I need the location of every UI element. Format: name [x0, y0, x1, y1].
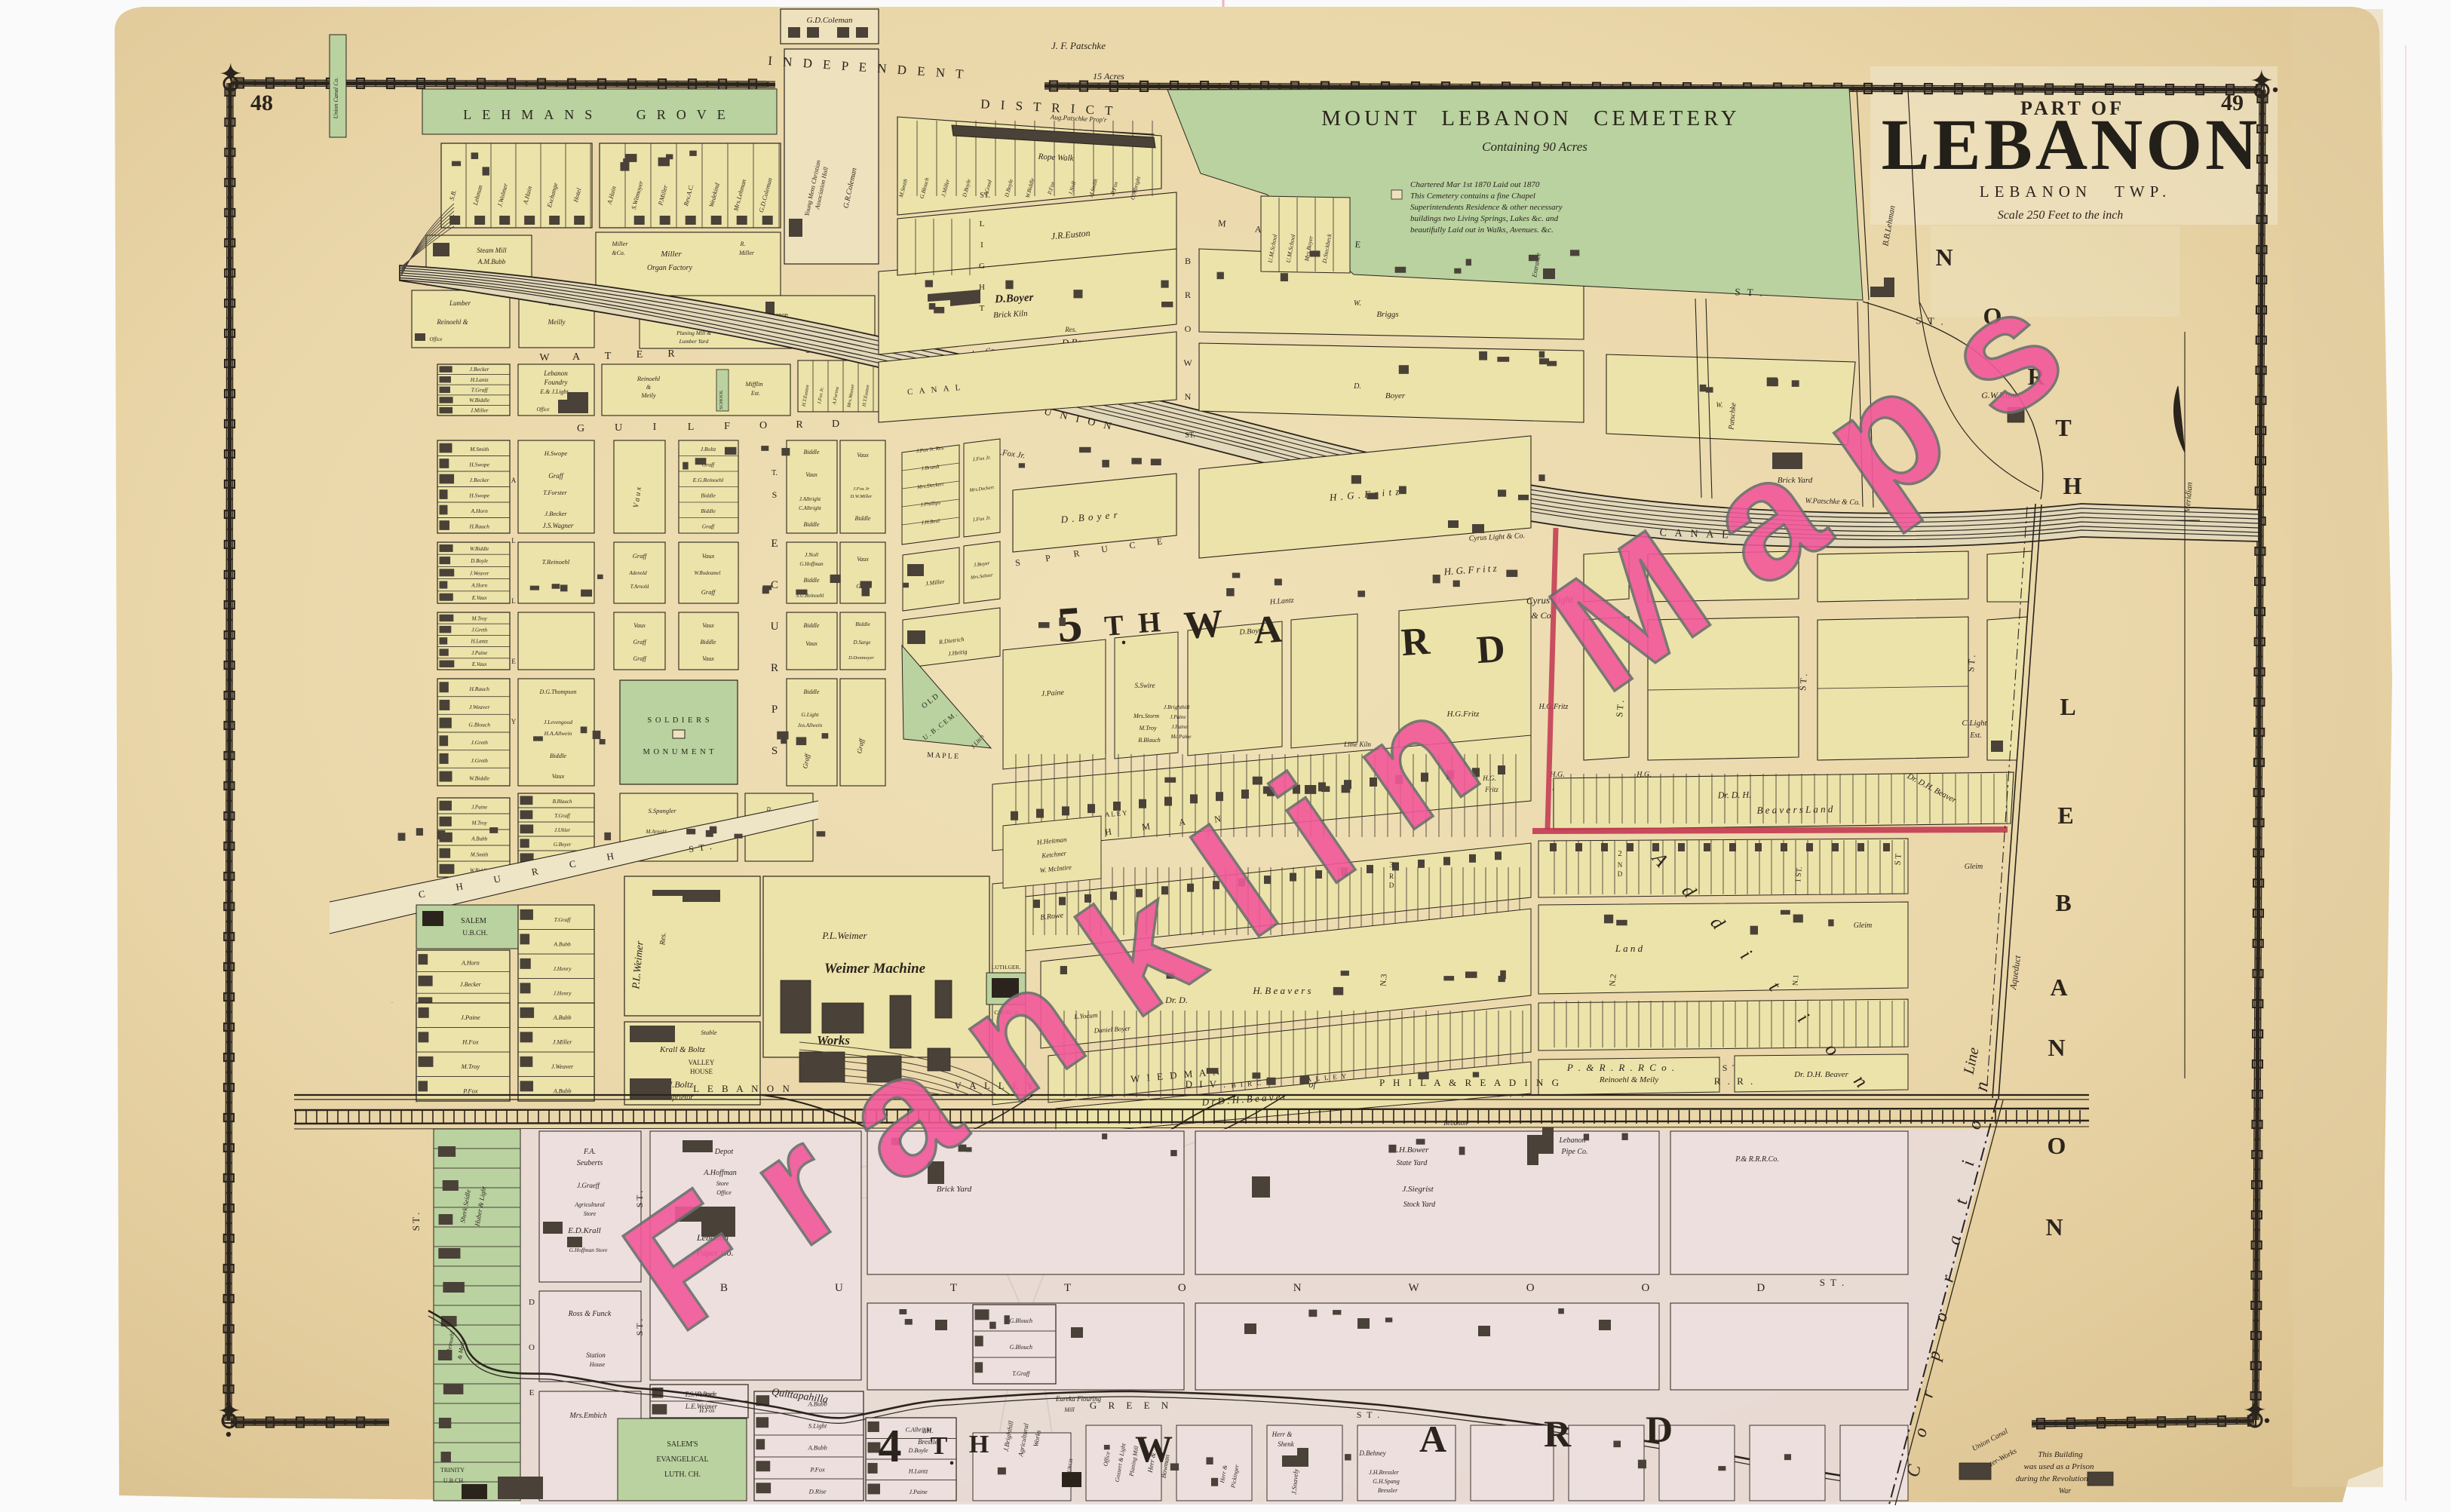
- svg-text:Vaux: Vaux: [702, 622, 714, 629]
- svg-text:Biddle: Biddle: [804, 577, 820, 584]
- svg-text:Lumber: Lumber: [449, 299, 471, 307]
- svg-text:M A P L E: M A P L E: [927, 751, 959, 761]
- svg-text:O: O: [1185, 324, 1192, 334]
- svg-text:SCHOOL: SCHOOL: [719, 390, 724, 409]
- svg-text:Vaux: Vaux: [857, 556, 869, 563]
- svg-text:D I V .: D I V .: [1186, 1078, 1229, 1090]
- svg-text:J.Brighthill: J.Brighthill: [1164, 704, 1189, 710]
- svg-text:LEBANON TWP.: LEBANON TWP.: [1980, 182, 2171, 201]
- svg-text:A: A: [572, 351, 581, 363]
- svg-text:E: E: [511, 658, 516, 665]
- svg-text:L: L: [2060, 693, 2075, 720]
- svg-text:War: War: [2059, 1487, 2071, 1495]
- svg-text:A.Horn: A.Horn: [461, 959, 480, 966]
- svg-text:O: O: [759, 420, 767, 431]
- svg-text:B.Blauch: B.Blauch: [391, 1002, 394, 1004]
- svg-text:Biddle: Biddle: [855, 621, 870, 627]
- svg-text:E: E: [2057, 802, 2073, 829]
- svg-text:W.: W.: [1354, 299, 1361, 308]
- svg-text:I: I: [653, 422, 657, 433]
- svg-text:Gleim: Gleim: [1854, 922, 1872, 930]
- svg-text:J.Weaver: J.Weaver: [470, 570, 489, 576]
- svg-text:Dr. D.H. Beaver: Dr. D.H. Beaver: [1793, 1070, 1849, 1079]
- svg-text:H.Rauch: H.Rauch: [468, 523, 489, 529]
- svg-text:B: B: [1185, 256, 1191, 266]
- svg-text:B e a v e r s L a n d: B e a v e r s L a n d: [1756, 803, 1833, 816]
- svg-text:J.Graeff: J.Graeff: [577, 1182, 600, 1189]
- svg-text:4: 4: [879, 1421, 902, 1472]
- svg-text:D.: D.: [1353, 382, 1361, 391]
- svg-text:EVANGELICAL: EVANGELICAL: [656, 1455, 708, 1464]
- svg-text:HOUSE: HOUSE: [690, 1068, 713, 1075]
- svg-text:T.Graff: T.Graff: [554, 916, 572, 923]
- svg-text:N: N: [2048, 1034, 2065, 1061]
- svg-text:H: H: [2063, 472, 2082, 499]
- svg-text:U: U: [615, 422, 622, 434]
- svg-text:J.H.Bressler: J.H.Bressler: [1369, 1469, 1400, 1476]
- svg-text:D.Rise: D.Rise: [808, 1488, 827, 1495]
- svg-text:G.Boyer: G.Boyer: [554, 842, 572, 848]
- svg-text:H.Swope: H.Swope: [468, 461, 490, 468]
- svg-text:Adenold: Adenold: [628, 570, 647, 576]
- svg-text:E: E: [637, 349, 643, 360]
- svg-text:S T .: S T .: [1965, 655, 1977, 673]
- svg-text:Vaux: Vaux: [805, 471, 818, 478]
- svg-text:Gleim: Gleim: [1965, 863, 1983, 871]
- svg-text:Est.: Est.: [1969, 731, 1981, 740]
- svg-text:.: .: [1121, 626, 1127, 649]
- svg-text:L.E.Weimer: L.E.Weimer: [685, 1403, 718, 1410]
- svg-text:Biddle: Biddle: [804, 521, 820, 528]
- svg-text:H: H: [1137, 606, 1161, 639]
- svg-text:D.W.Miller: D.W.Miller: [849, 494, 872, 499]
- svg-text:H.Rauch: H.Rauch: [468, 685, 489, 692]
- svg-text:M.Smith: M.Smith: [469, 446, 489, 452]
- svg-text:Dr. D. H.: Dr. D. H.: [1717, 790, 1752, 801]
- svg-text:Chartered Mar 1st 1870 Laid ou: Chartered Mar 1st 1870 Laid out 1870: [1410, 180, 1540, 189]
- svg-text:1 ST.: 1 ST.: [1794, 866, 1804, 883]
- svg-text:R: R: [796, 419, 803, 431]
- svg-text:J.Paine: J.Paine: [909, 1489, 928, 1495]
- svg-text:Jos.Allwein: Jos.Allwein: [798, 722, 823, 728]
- svg-text:E.Vaux: E.Vaux: [471, 661, 488, 667]
- svg-text:W: W: [1183, 357, 1192, 368]
- svg-text:L: L: [980, 219, 985, 228]
- svg-text:D.Boyle: D.Boyle: [470, 558, 488, 564]
- svg-text:Vaux: Vaux: [805, 640, 818, 647]
- svg-text:Biddle: Biddle: [855, 515, 871, 522]
- svg-text:F: F: [724, 421, 730, 432]
- svg-text:Biddle: Biddle: [701, 492, 716, 499]
- svg-text:Stable: Stable: [701, 1029, 716, 1036]
- svg-text:T: T: [931, 1432, 948, 1460]
- svg-text:Miller: Miller: [738, 250, 755, 256]
- svg-text:E: E: [1354, 239, 1361, 250]
- svg-text:A.Bubb: A.Bubb: [807, 1444, 827, 1452]
- svg-text:H: H: [969, 1431, 989, 1458]
- svg-text:G.Hoffman: G.Hoffman: [799, 561, 824, 567]
- svg-text:J.Henry: J.Henry: [554, 965, 572, 972]
- svg-text:R.: R.: [740, 241, 746, 247]
- svg-text:Briggs: Briggs: [1376, 310, 1398, 319]
- svg-text:R: R: [667, 348, 675, 360]
- svg-text:D.Sarge: D.Sarge: [853, 639, 871, 646]
- svg-text:Mc.Paine: Mc.Paine: [1170, 734, 1191, 740]
- svg-text:Mrs.Embich: Mrs.Embich: [569, 1412, 606, 1420]
- svg-text:H: H: [979, 283, 985, 292]
- svg-text:S: S: [771, 745, 778, 757]
- svg-text:P.L.Weimer: P.L.Weimer: [821, 930, 867, 941]
- svg-text:J.Henry: J.Henry: [554, 990, 572, 997]
- svg-text:A.Horn: A.Horn: [471, 508, 489, 514]
- svg-text:M: M: [1217, 218, 1226, 229]
- svg-text:B.Blauch: B.Blauch: [1138, 737, 1161, 744]
- svg-text:E.D.Krall: E.D.Krall: [567, 1226, 600, 1235]
- svg-text:M.Troy: M.Troy: [471, 615, 488, 621]
- svg-text:P: P: [771, 704, 778, 716]
- svg-text:O: O: [2048, 1132, 2066, 1159]
- svg-text:Graff: Graff: [701, 588, 716, 596]
- svg-text:J.Weaver: J.Weaver: [469, 704, 489, 710]
- svg-text:M O N U M E N T: M O N U M E N T: [643, 748, 714, 756]
- svg-text:Pipe Co.: Pipe Co.: [1561, 1148, 1588, 1156]
- svg-text:G.Blouch: G.Blouch: [1010, 1317, 1032, 1324]
- svg-text:Graff: Graff: [548, 472, 564, 480]
- svg-text:Lebanon: Lebanon: [543, 370, 568, 377]
- svg-text:D.Boyer: D.Boyer: [994, 292, 1034, 306]
- svg-text:M.Troy: M.Troy: [1138, 725, 1156, 731]
- svg-text:W: W: [1183, 602, 1225, 647]
- svg-text:R: R: [771, 662, 778, 674]
- svg-text:was used as a Prison: was used as a Prison: [2024, 1462, 2094, 1471]
- svg-text:D: D: [1646, 1408, 1673, 1450]
- svg-text:S T .: S T .: [1820, 1277, 1845, 1288]
- svg-text:Mrs.Storm: Mrs.Storm: [1133, 713, 1159, 719]
- svg-text:P H I L A & R E A D I N G: P H I L A & R E A D I N G: [1379, 1077, 1562, 1088]
- svg-text:J.Uhler: J.Uhler: [554, 827, 570, 833]
- svg-text:L: L: [511, 597, 516, 605]
- svg-text:Stock Yard: Stock Yard: [1403, 1201, 1436, 1209]
- svg-text:S T: S T: [1893, 853, 1903, 866]
- svg-text:J.Becker: J.Becker: [544, 510, 567, 517]
- svg-text:H.Lantz: H.Lantz: [470, 639, 488, 645]
- svg-text:Mifflin: Mifflin: [744, 380, 762, 388]
- svg-text:J.Boltz: J.Boltz: [701, 446, 716, 452]
- svg-text:J.Paine: J.Paine: [1041, 689, 1065, 698]
- svg-text:D: D: [529, 1298, 535, 1307]
- svg-text:.: .: [949, 1446, 955, 1470]
- svg-text:O: O: [529, 1343, 535, 1352]
- svg-text:Vaux: Vaux: [633, 622, 646, 629]
- svg-text:W.: W.: [1716, 401, 1723, 409]
- svg-text:G.Blouch: G.Blouch: [1010, 1344, 1032, 1351]
- svg-text:J. F. Patschke: J. F. Patschke: [1051, 40, 1106, 51]
- svg-text:G: G: [979, 262, 985, 271]
- svg-text:H.Fox: H.Fox: [462, 1038, 479, 1046]
- svg-text:H.Lantz: H.Lantz: [470, 376, 489, 383]
- svg-text:J.Paine: J.Paine: [1171, 724, 1187, 730]
- svg-text:&: &: [646, 384, 652, 391]
- svg-text:G.Light: G.Light: [801, 711, 819, 718]
- svg-text:E.Vaux: E.Vaux: [471, 595, 488, 601]
- svg-text:Herr &: Herr &: [1272, 1431, 1293, 1438]
- svg-text:Station: Station: [586, 1351, 606, 1359]
- svg-text:U.B.CH.: U.B.CH.: [443, 1477, 465, 1484]
- svg-text:J.Noll: J.Noll: [805, 551, 818, 558]
- svg-text:G.H.Spang: G.H.Spang: [1373, 1478, 1400, 1485]
- svg-text:Lebanon: Lebanon: [1443, 1119, 1468, 1127]
- svg-text:Meily: Meily: [640, 391, 656, 399]
- svg-text:T.Forster: T.Forster: [543, 489, 567, 496]
- svg-text:Office: Office: [536, 406, 549, 413]
- svg-text:N: N: [1935, 244, 1953, 271]
- svg-text:A.Bubb: A.Bubb: [553, 1088, 572, 1095]
- svg-text:Bressler: Bressler: [1378, 1487, 1398, 1494]
- svg-text:J.Paine: J.Paine: [461, 1014, 480, 1021]
- svg-text:T.Arnold: T.Arnold: [630, 584, 649, 590]
- svg-text:J.Greth: J.Greth: [471, 739, 488, 746]
- svg-text:A.Horn: A.Horn: [471, 583, 487, 589]
- svg-text:E.G.Reinoehl: E.G.Reinoehl: [692, 477, 723, 483]
- svg-text:Meilly: Meilly: [548, 318, 566, 326]
- svg-text:A: A: [2050, 974, 2067, 1001]
- svg-text:Superintendents Residence & ot: Superintendents Residence & other necess…: [1410, 203, 1563, 212]
- svg-text:C.Albright: C.Albright: [799, 505, 822, 511]
- svg-text:J.Weaver: J.Weaver: [415, 1102, 418, 1103]
- svg-text:TRINITY: TRINITY: [440, 1467, 465, 1474]
- svg-text:LEHMANS GROVE: LEHMANS GROVE: [463, 107, 736, 122]
- svg-text:H.Swope: H.Swope: [468, 492, 490, 498]
- svg-text:during the Revolutionary: during the Revolutionary: [2016, 1474, 2100, 1483]
- svg-text:VALLEY: VALLEY: [689, 1059, 715, 1066]
- svg-text:P.& R.R.R.Co.: P.& R.R.R.Co.: [1735, 1155, 1779, 1164]
- svg-text:A: A: [1419, 1418, 1446, 1460]
- svg-text:R . R .: R . R .: [1714, 1075, 1756, 1087]
- svg-text:D.Behney: D.Behney: [1358, 1449, 1385, 1457]
- svg-text:Graff: Graff: [633, 655, 647, 662]
- svg-text:N: N: [2045, 1213, 2063, 1241]
- svg-text:D: D: [1618, 870, 1623, 878]
- svg-text:A.Bubb: A.Bubb: [553, 941, 571, 948]
- svg-text:S T .: S T .: [634, 1319, 645, 1336]
- svg-text:D.Boyle: D.Boyle: [908, 1447, 928, 1454]
- svg-text:M.Troy: M.Troy: [471, 820, 488, 826]
- svg-text:G.Blouch: G.Blouch: [468, 721, 490, 728]
- svg-text:A.Bubb: A.Bubb: [471, 836, 487, 842]
- svg-text:W: W: [539, 352, 550, 363]
- svg-text:T.Graff: T.Graff: [1012, 1370, 1031, 1377]
- svg-text:W.Biddle: W.Biddle: [469, 774, 490, 781]
- svg-text:Organ Factory: Organ Factory: [647, 264, 692, 272]
- svg-text:D.Donmoyer: D.Donmoyer: [848, 655, 874, 661]
- svg-text:Foundry: Foundry: [544, 379, 568, 386]
- svg-text:J.Paine: J.Paine: [471, 650, 487, 656]
- svg-text:Shenk: Shenk: [1278, 1440, 1294, 1448]
- svg-text:S T .: S T .: [1797, 673, 1809, 692]
- svg-text:Office: Office: [429, 336, 442, 342]
- svg-text:Containing 90 Acres: Containing 90 Acres: [1482, 140, 1587, 154]
- svg-text:D: D: [832, 419, 839, 430]
- svg-text:15 Acres: 15 Acres: [1093, 71, 1124, 81]
- svg-text:Lumber Yard: Lumber Yard: [679, 338, 709, 345]
- svg-text:Scale 250 Feet to the inch: Scale 250 Feet to the inch: [1998, 209, 2124, 222]
- svg-text:M.Smith: M.Smith: [470, 851, 489, 857]
- svg-text:L a n d: L a n d: [1615, 943, 1643, 954]
- svg-text:N: N: [1618, 861, 1623, 869]
- svg-text:Vaux: Vaux: [552, 772, 565, 780]
- svg-text:Lebanon: Lebanon: [1559, 1136, 1586, 1145]
- svg-text:Steam Mill: Steam Mill: [477, 247, 507, 254]
- svg-text:J.Siegrist: J.Siegrist: [1402, 1185, 1434, 1194]
- svg-text:Vaux: Vaux: [857, 452, 869, 459]
- svg-text:J.Becker: J.Becker: [460, 981, 482, 988]
- svg-text:Reinoehl: Reinoehl: [637, 375, 661, 382]
- svg-text:ST.: ST.: [980, 192, 989, 200]
- svg-text:House: House: [589, 1361, 606, 1368]
- svg-text:J.Miller: J.Miller: [471, 407, 489, 414]
- svg-text:B.Blauch: B.Blauch: [553, 799, 572, 805]
- svg-text:Res.: Res.: [1064, 326, 1076, 333]
- svg-text:Biddle: Biddle: [804, 689, 820, 695]
- svg-text:C: C: [771, 579, 778, 591]
- svg-text:Rope Walk: Rope Walk: [1037, 152, 1075, 164]
- svg-text:Krall & Boltz: Krall & Boltz: [659, 1045, 706, 1054]
- svg-text:N.2: N.2: [1608, 974, 1618, 986]
- svg-text:A.M.Bubb: A.M.Bubb: [477, 258, 506, 265]
- svg-text:&Co.: &Co.: [612, 250, 625, 256]
- svg-text:P . & R . R . R C o .: P . & R . R . R C o .: [1566, 1062, 1676, 1073]
- svg-text:T.: T.: [771, 469, 778, 477]
- svg-text:Reinoehl &: Reinoehl &: [436, 318, 468, 326]
- svg-text:H.Lantz: H.Lantz: [908, 1468, 928, 1475]
- svg-text:BUTTONWOOD: BUTTONWOOD: [720, 1282, 1872, 1294]
- svg-text:Boyer: Boyer: [1385, 391, 1406, 400]
- svg-text:E: E: [771, 538, 778, 550]
- svg-text:W.Biddle: W.Biddle: [469, 397, 490, 403]
- svg-text:M.Troy: M.Troy: [461, 1063, 480, 1070]
- svg-text:E.& J.Light: E.& J.Light: [539, 388, 569, 395]
- svg-text:SALEM'S: SALEM'S: [667, 1440, 698, 1449]
- svg-text:Biddle: Biddle: [550, 752, 566, 759]
- svg-text:Mill: Mill: [1063, 1406, 1075, 1413]
- svg-text:S.Light: S.Light: [808, 1422, 827, 1430]
- svg-text:L: L: [688, 422, 695, 433]
- svg-text:Ross & Funck: Ross & Funck: [568, 1310, 612, 1318]
- svg-text:A.Bubb: A.Bubb: [553, 1014, 572, 1021]
- svg-text:J.Paine: J.Paine: [1170, 714, 1186, 720]
- svg-text:H.A.Allwein: H.A.Allwein: [544, 730, 572, 737]
- svg-text:J.Fox Jr: J.Fox Jr: [853, 486, 870, 492]
- svg-text:T: T: [980, 304, 985, 313]
- svg-text:Res.: Res.: [658, 932, 668, 946]
- svg-text:P.Fox: P.Fox: [809, 1466, 825, 1474]
- svg-text:U: U: [771, 621, 779, 633]
- svg-text:N.3: N.3: [1379, 974, 1388, 987]
- svg-text:Union Canal Co.: Union Canal Co.: [333, 78, 339, 119]
- svg-text:Est.: Est.: [750, 390, 760, 397]
- svg-text:Biddle: Biddle: [701, 508, 716, 514]
- svg-text:H.Swope: H.Swope: [544, 449, 568, 457]
- svg-text:W: W: [1135, 1428, 1173, 1470]
- svg-text:Miller: Miller: [611, 240, 628, 247]
- svg-text:A: A: [511, 477, 517, 484]
- svg-text:J.Paine: J.Paine: [471, 804, 487, 810]
- svg-text:ST.: ST.: [1185, 431, 1195, 440]
- svg-text:N.1: N.1: [1791, 974, 1800, 986]
- svg-text:This Cemetery contains a fine: This Cemetery contains a fine Chapel: [1410, 192, 1535, 201]
- svg-text:buildings two Living Springs,: buildings two Living Springs, Lakes &c. …: [1410, 214, 1559, 223]
- svg-text:J.Levengood: J.Levengood: [544, 719, 572, 725]
- svg-text:R: R: [1185, 290, 1191, 300]
- svg-text:G.D.Coleman: G.D.Coleman: [806, 16, 853, 25]
- svg-text:48: 48: [250, 90, 273, 115]
- svg-text:R: R: [1544, 1412, 1572, 1455]
- svg-text:T.Reinoehl: T.Reinoehl: [542, 558, 570, 566]
- svg-text:Weimer Machine: Weimer Machine: [824, 961, 926, 977]
- svg-text:H. B e a v e r s: H. B e a v e r s: [1252, 985, 1311, 996]
- svg-text:Biddle: Biddle: [804, 449, 820, 455]
- svg-text:W.Rodeamel: W.Rodeamel: [695, 570, 721, 576]
- svg-text:Brick Kiln: Brick Kiln: [993, 309, 1029, 320]
- svg-text:Graff: Graff: [633, 552, 648, 560]
- svg-text:J.Miller: J.Miller: [553, 1039, 572, 1046]
- svg-text:A.H.Bower: A.H.Bower: [1391, 1146, 1430, 1155]
- svg-text:S T .: S T .: [1735, 286, 1765, 298]
- svg-text:G.Hoffman Store: G.Hoffman Store: [569, 1247, 609, 1253]
- svg-text:Biddle: Biddle: [804, 622, 820, 629]
- svg-text:D.G.Thompson: D.G.Thompson: [539, 689, 577, 695]
- svg-text:Biddle: Biddle: [701, 639, 716, 646]
- svg-text:LEBANON: LEBANON: [1882, 104, 2261, 185]
- svg-text:T.Graff: T.Graff: [471, 386, 489, 393]
- svg-text:J.Greth: J.Greth: [471, 627, 487, 633]
- svg-text:S T .: S T .: [410, 1213, 422, 1231]
- svg-text:SALEM: SALEM: [461, 917, 486, 925]
- svg-text:T.Graff: T.Graff: [554, 813, 570, 819]
- svg-text:J.S.Wagner: J.S.Wagner: [543, 522, 574, 529]
- svg-text:Seuberts: Seuberts: [577, 1159, 603, 1167]
- svg-text:Y: Y: [511, 718, 517, 725]
- svg-text:P.Fox: P.Fox: [462, 1087, 478, 1095]
- svg-text:B: B: [2055, 889, 2071, 916]
- svg-text:G R E E N: G R E E N: [1090, 1400, 1173, 1411]
- svg-text:MOUNT LEBANON CEMETERY: MOUNT LEBANON CEMETERY: [1321, 106, 1741, 130]
- svg-text:LUTH. CH.: LUTH. CH.: [664, 1471, 701, 1479]
- svg-text:2: 2: [1618, 849, 1622, 858]
- svg-text:S.Spangler: S.Spangler: [648, 807, 676, 814]
- svg-text:S O L D I E R S: S O L D I E R S: [647, 716, 710, 725]
- svg-text:Miller: Miller: [660, 250, 682, 259]
- svg-text:U.B.CH.: U.B.CH.: [462, 930, 488, 937]
- svg-text:beautifully Laid out in Walks,: beautifully Laid out in Walks, Avenues. …: [1410, 225, 1554, 235]
- svg-text:S: S: [772, 489, 778, 500]
- svg-text:This Building: This Building: [2038, 1450, 2083, 1459]
- svg-text:Graff: Graff: [702, 523, 715, 530]
- svg-text:Vaux: Vaux: [702, 655, 714, 662]
- svg-text:Reinoehl & Meily: Reinoehl & Meily: [1599, 1075, 1658, 1084]
- svg-text:G: G: [577, 423, 584, 434]
- svg-text:T: T: [605, 351, 612, 362]
- svg-text:J.Albright: J.Albright: [799, 496, 821, 502]
- svg-text:J.Greth: J.Greth: [471, 757, 488, 764]
- svg-text:F.A.: F.A.: [583, 1148, 596, 1156]
- svg-text:J.Becker: J.Becker: [470, 477, 489, 483]
- svg-text:State Yard: State Yard: [1397, 1159, 1428, 1167]
- svg-text:Graff: Graff: [633, 639, 647, 646]
- svg-text:C.Light: C.Light: [1962, 719, 1987, 728]
- svg-text:N: N: [1185, 391, 1192, 402]
- svg-text:S.Swire: S.Swire: [1135, 682, 1155, 689]
